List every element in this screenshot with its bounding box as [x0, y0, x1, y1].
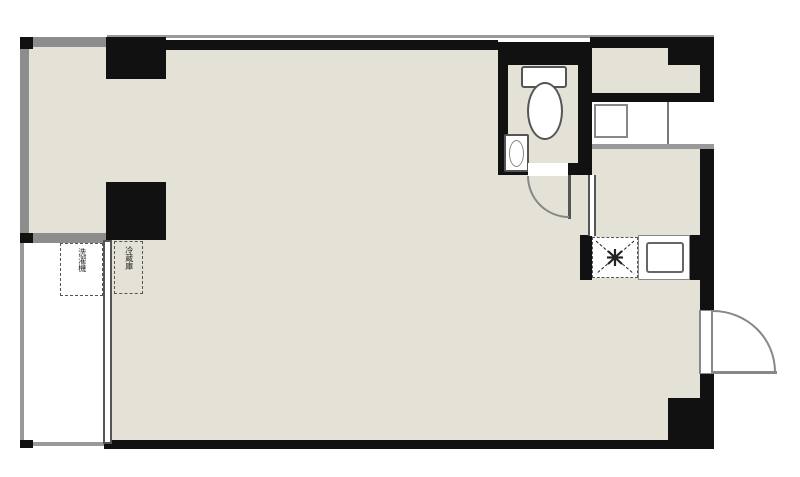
kitchen-cabinets-divider — [667, 102, 669, 144]
wall-toilet-bottom-right — [568, 163, 592, 175]
wall-top-mid — [166, 40, 498, 50]
column-mid-left — [106, 182, 166, 240]
refrigerator-space: 冷蔵庫 — [114, 241, 143, 294]
hand-basin — [504, 134, 529, 172]
wall-right-below-door — [700, 374, 714, 400]
hand-basin-bowl — [509, 140, 524, 167]
entrance-doorway-frame — [699, 310, 713, 374]
balcony-left-rail — [20, 243, 24, 447]
wall-bottom — [104, 440, 714, 449]
counter-wall-right — [690, 235, 714, 280]
entrance-door-swing-arc — [713, 310, 776, 372]
kitchen-cabinets-base-line — [592, 144, 714, 149]
kitchen-partition-wall — [588, 175, 596, 236]
kitchen-sink-basin — [646, 242, 684, 273]
washing-machine-space: 洗濯機 — [60, 243, 103, 296]
wall-toilet-right — [578, 42, 592, 175]
wall-balcony-top — [20, 233, 112, 243]
column-top-left-cap — [20, 37, 33, 49]
wall-toilet-top — [498, 42, 590, 65]
wall-kitchen-upper — [592, 93, 714, 102]
wall-left — [20, 37, 29, 243]
wall-top-right — [590, 37, 714, 48]
column-bottom-left-cap — [20, 440, 33, 448]
washing-machine-label: 洗濯機 — [77, 248, 85, 272]
toilet-bowl — [527, 82, 563, 140]
floor-plan: 洗濯機 冷蔵庫 — [0, 0, 800, 477]
counter-wall-left — [580, 235, 592, 280]
kitchen-cabinet-unit — [594, 104, 628, 138]
balcony-window — [103, 240, 112, 444]
gas-stove — [592, 237, 638, 278]
toilet-doorway — [528, 163, 568, 176]
wall-top-left — [29, 37, 107, 47]
refrigerator-label: 冷蔵庫 — [124, 246, 132, 270]
column-top — [106, 37, 166, 79]
kitchen-sink — [638, 235, 690, 280]
column-balcony-wall-cap — [20, 233, 33, 243]
gas-burner-icon — [593, 238, 637, 277]
